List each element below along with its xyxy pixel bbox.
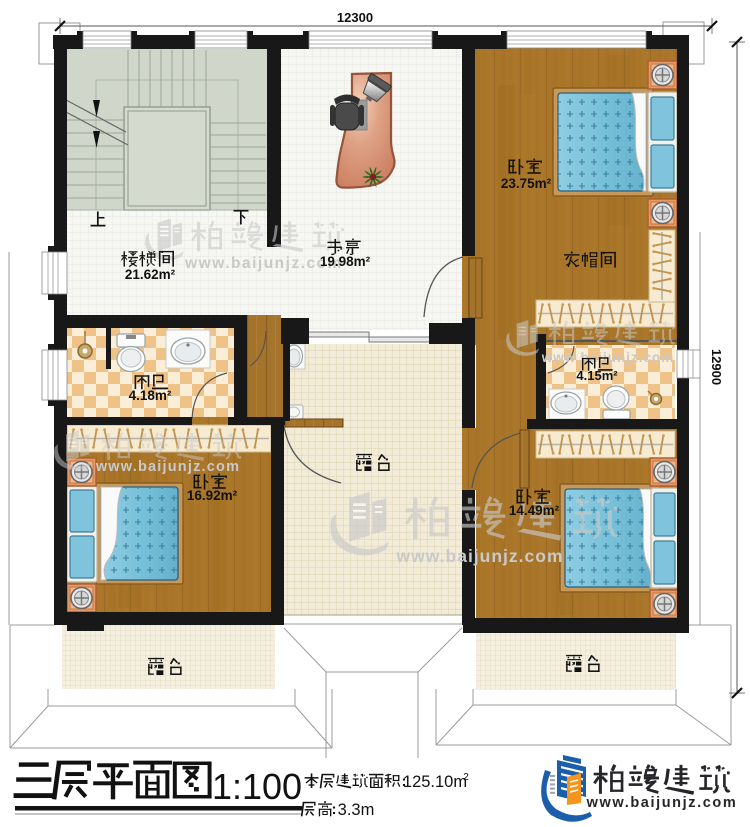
svg-text:12900: 12900	[709, 349, 724, 385]
svg-text:21.62m²: 21.62m²	[125, 267, 176, 282]
svg-text:4.15m²: 4.15m²	[576, 368, 618, 383]
svg-text::: :	[332, 801, 337, 818]
svg-text:www.baijunjz.com: www.baijunjz.com	[395, 546, 563, 566]
svg-text:4.18m²: 4.18m²	[129, 388, 172, 403]
svg-text:23.75m²: 23.75m²	[501, 176, 552, 191]
svg-text:16.92m²: 16.92m²	[187, 488, 238, 503]
svg-text:14.49m²: 14.49m²	[509, 503, 560, 518]
svg-text:www.baijunjz.com: www.baijunjz.com	[586, 795, 738, 811]
svg-text:www.baijunjz.com: www.baijunjz.com	[95, 459, 240, 475]
svg-text:12300: 12300	[337, 10, 373, 25]
svg-text:125.10m: 125.10m	[403, 773, 467, 791]
svg-text:1:100: 1:100	[212, 766, 302, 807]
svg-text:19.98m²: 19.98m²	[320, 254, 371, 269]
svg-text:3.3m: 3.3m	[338, 801, 375, 819]
svg-text:2: 2	[463, 772, 469, 783]
